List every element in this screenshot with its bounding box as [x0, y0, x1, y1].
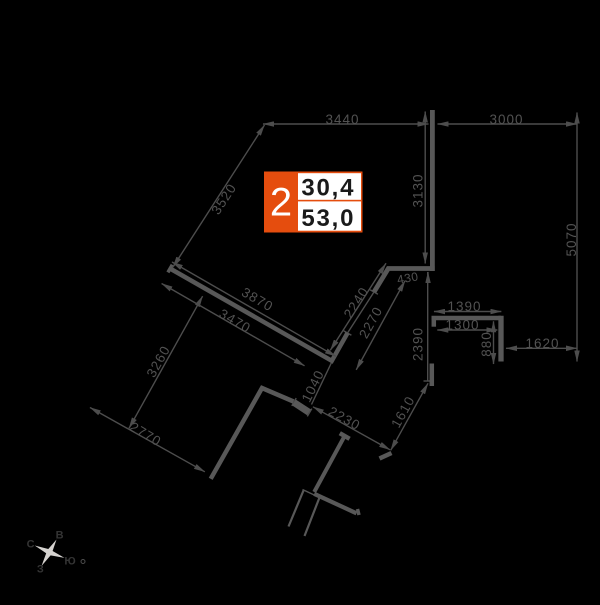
svg-text:Ю: Ю — [64, 555, 75, 567]
svg-text:5070: 5070 — [564, 222, 579, 256]
svg-text:1300: 1300 — [445, 317, 479, 332]
svg-text:В: В — [56, 530, 64, 542]
svg-text:53,0: 53,0 — [301, 205, 355, 232]
svg-text:3000: 3000 — [489, 112, 523, 127]
svg-text:3440: 3440 — [325, 112, 359, 127]
svg-text:1620: 1620 — [525, 336, 559, 351]
svg-text:2390: 2390 — [411, 327, 426, 361]
svg-text:880: 880 — [479, 331, 494, 357]
svg-text:З: З — [37, 564, 44, 576]
svg-text:30,4: 30,4 — [301, 175, 355, 202]
svg-text:2: 2 — [270, 181, 292, 225]
svg-text:С: С — [27, 539, 35, 551]
svg-text:1390: 1390 — [447, 299, 481, 314]
svg-text:3130: 3130 — [411, 173, 426, 207]
